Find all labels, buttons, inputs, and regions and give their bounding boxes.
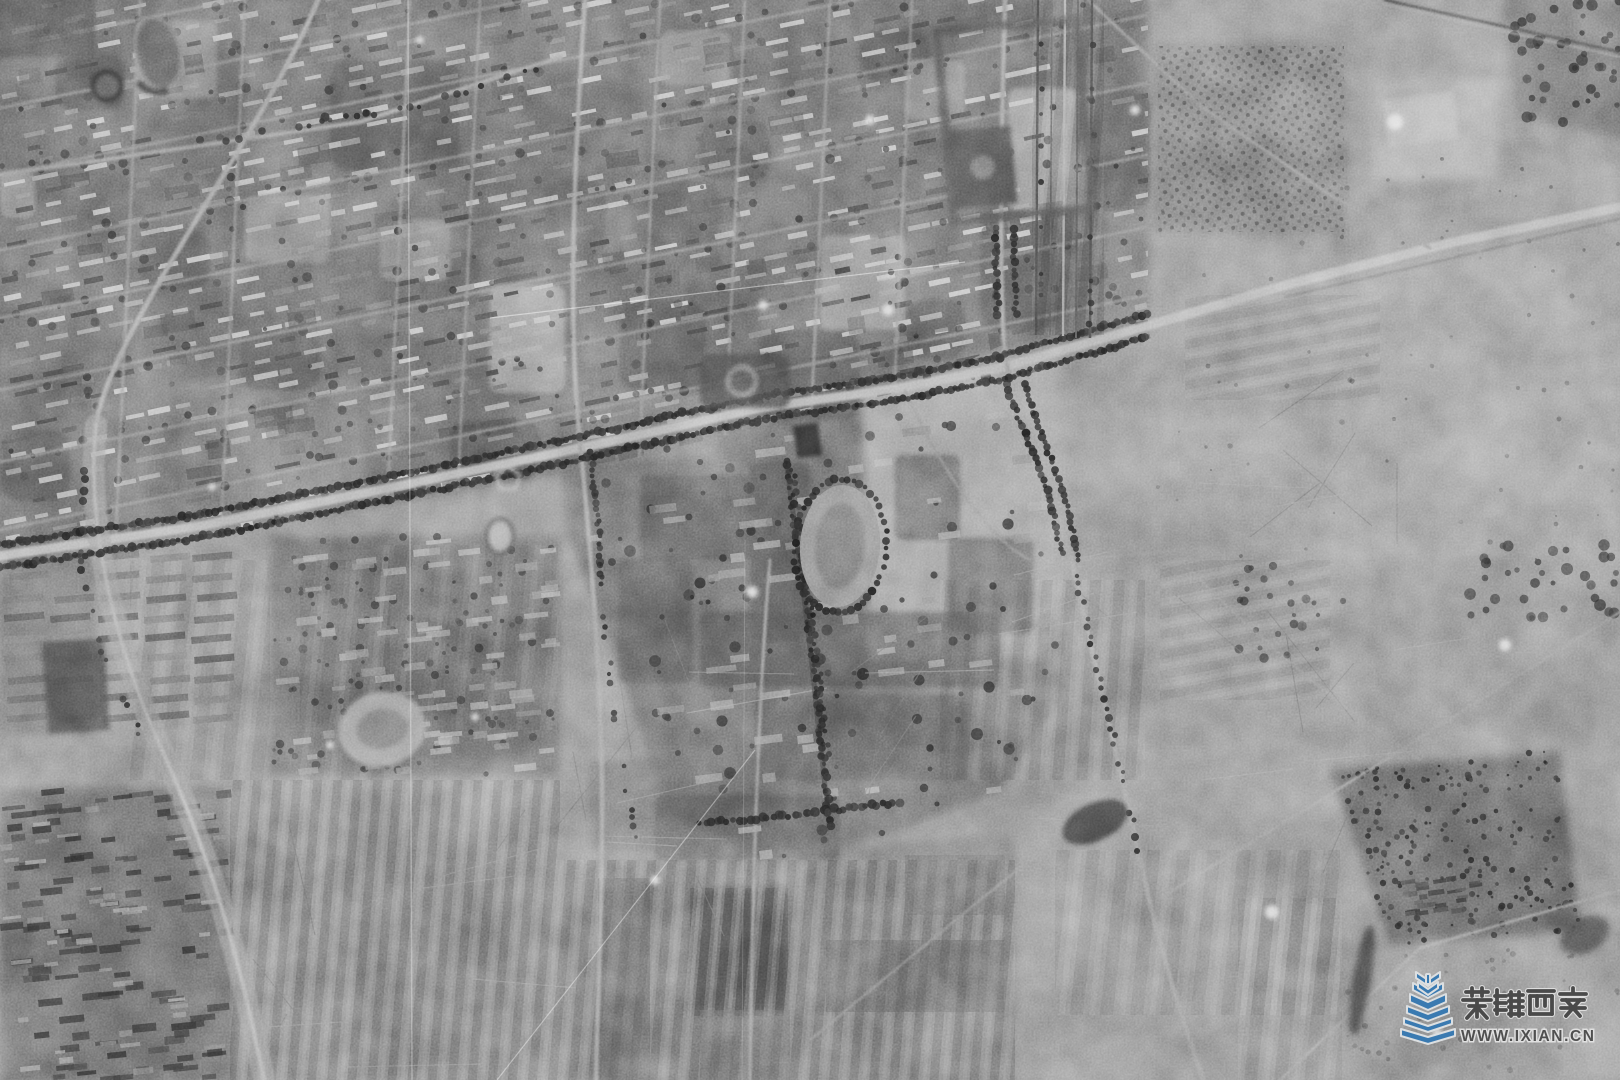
svg-text:WWW.IXIAN.CN: WWW.IXIAN.CN <box>1461 1028 1596 1045</box>
